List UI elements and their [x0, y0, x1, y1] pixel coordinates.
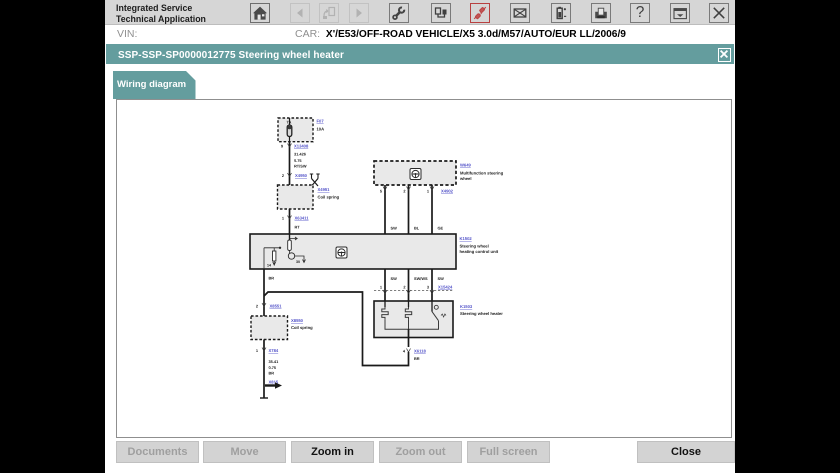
svg-text:RT: RT	[295, 225, 301, 230]
svg-text:BR: BR	[269, 371, 275, 376]
svg-text:Steering wheel: Steering wheel	[460, 244, 489, 249]
svg-text:10A: 10A	[317, 127, 325, 132]
svg-text:GE: GE	[438, 226, 444, 231]
svg-text:Multifunction steering: Multifunction steering	[460, 171, 504, 176]
svg-text:Steering wheel heater: Steering wheel heater	[460, 311, 503, 316]
svg-text:Coil spring: Coil spring	[318, 195, 340, 200]
svg-text:1: 1	[282, 216, 285, 221]
svg-text:K1503: K1503	[460, 304, 473, 309]
svg-text:35.41: 35.41	[269, 359, 280, 364]
svg-text:0.75: 0.75	[269, 365, 277, 370]
svg-text:2: 2	[256, 304, 259, 309]
svg-text:X13408: X13408	[294, 144, 309, 149]
svg-text:SW/WS: SW/WS	[414, 276, 428, 281]
svg-text:2: 2	[282, 173, 285, 178]
svg-text:BR: BR	[414, 356, 420, 361]
svg-text:1: 1	[256, 348, 259, 353]
svg-text:X15424: X15424	[438, 285, 453, 290]
svg-text:wheel: wheel	[459, 176, 472, 181]
svg-text:0.75: 0.75	[294, 158, 302, 163]
svg-text:31.426: 31.426	[294, 152, 307, 157]
svg-text:X63411: X63411	[295, 216, 310, 221]
svg-text:Coil spring: Coil spring	[291, 325, 313, 330]
svg-text:1: 1	[427, 189, 430, 194]
svg-text:2: 2	[403, 189, 406, 194]
svg-text:heating control unit: heating control unit	[460, 249, 499, 254]
svg-text:BR: BR	[269, 276, 275, 281]
svg-text:X4902: X4902	[441, 189, 454, 194]
svg-text:BL: BL	[414, 226, 420, 231]
svg-text:X8551: X8551	[270, 304, 283, 309]
svg-text:X4950: X4950	[295, 173, 308, 178]
svg-text:9: 9	[281, 144, 284, 149]
svg-text:RT/SW: RT/SW	[294, 164, 307, 169]
svg-text:W649: W649	[460, 163, 472, 168]
svg-text:X8550: X8550	[291, 318, 304, 323]
svg-text:3: 3	[427, 285, 430, 290]
svg-text:14: 14	[267, 264, 271, 268]
svg-text:SW: SW	[438, 276, 445, 281]
svg-text:4: 4	[403, 349, 406, 354]
svg-text:2: 2	[403, 285, 406, 290]
svg-text:F07: F07	[317, 119, 325, 124]
svg-text:K1502: K1502	[460, 236, 473, 241]
svg-text:X784: X784	[269, 348, 279, 353]
svg-text:SW: SW	[391, 276, 398, 281]
svg-text:X4951: X4951	[318, 187, 331, 192]
svg-text:30: 30	[296, 260, 300, 264]
svg-text:X6118: X6118	[414, 349, 426, 354]
svg-text:5: 5	[380, 189, 383, 194]
svg-text:SW: SW	[391, 226, 398, 231]
svg-text:1: 1	[380, 285, 383, 290]
